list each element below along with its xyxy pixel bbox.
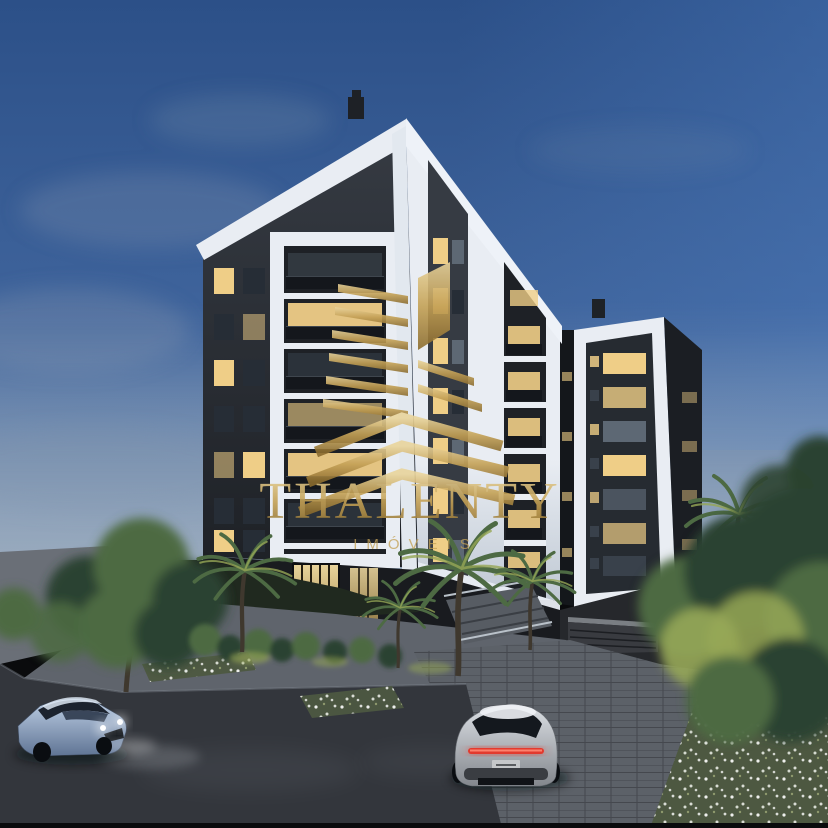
rooftop-antenna (592, 299, 605, 318)
wheel (33, 742, 51, 762)
bottom-letterbox (0, 823, 828, 828)
taillight-bar (468, 748, 544, 754)
entrance-canopy (286, 554, 348, 561)
architectural-rendering: THALENTY IMÓVEIS (0, 0, 828, 828)
car-roof-highlight (480, 705, 536, 719)
diffuser (478, 778, 534, 785)
render-canvas: THALENTY IMÓVEIS (0, 0, 828, 828)
watermark-tagline: IMÓVEIS (353, 536, 479, 553)
rooftop-antenna (348, 97, 364, 119)
watermark-brand: THALENTY (259, 473, 560, 530)
license-plate-text (496, 764, 516, 766)
rooftop-antenna (352, 90, 361, 99)
wheel (96, 737, 112, 755)
